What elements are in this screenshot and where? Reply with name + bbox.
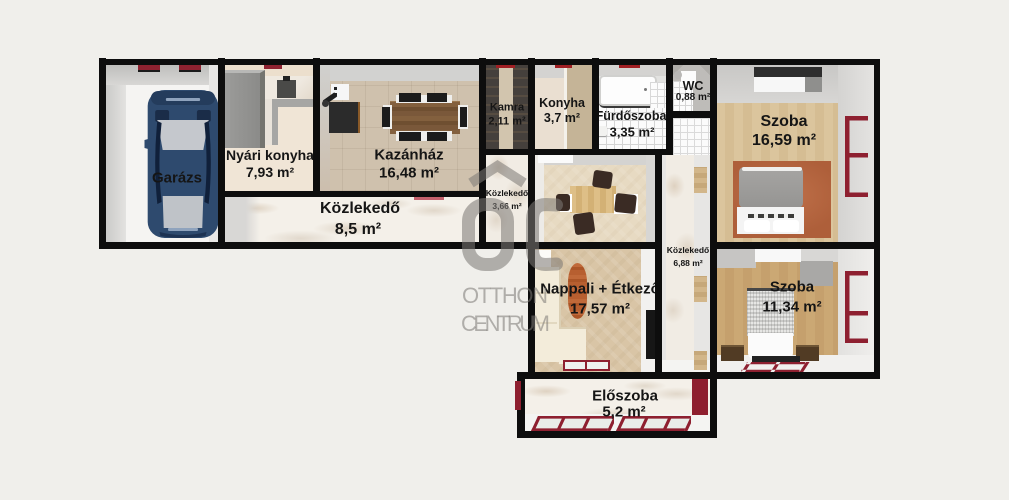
- svg-text:CENTRUM: CENTRUM: [461, 311, 550, 336]
- svg-text:OTTHON: OTTHON: [462, 283, 548, 308]
